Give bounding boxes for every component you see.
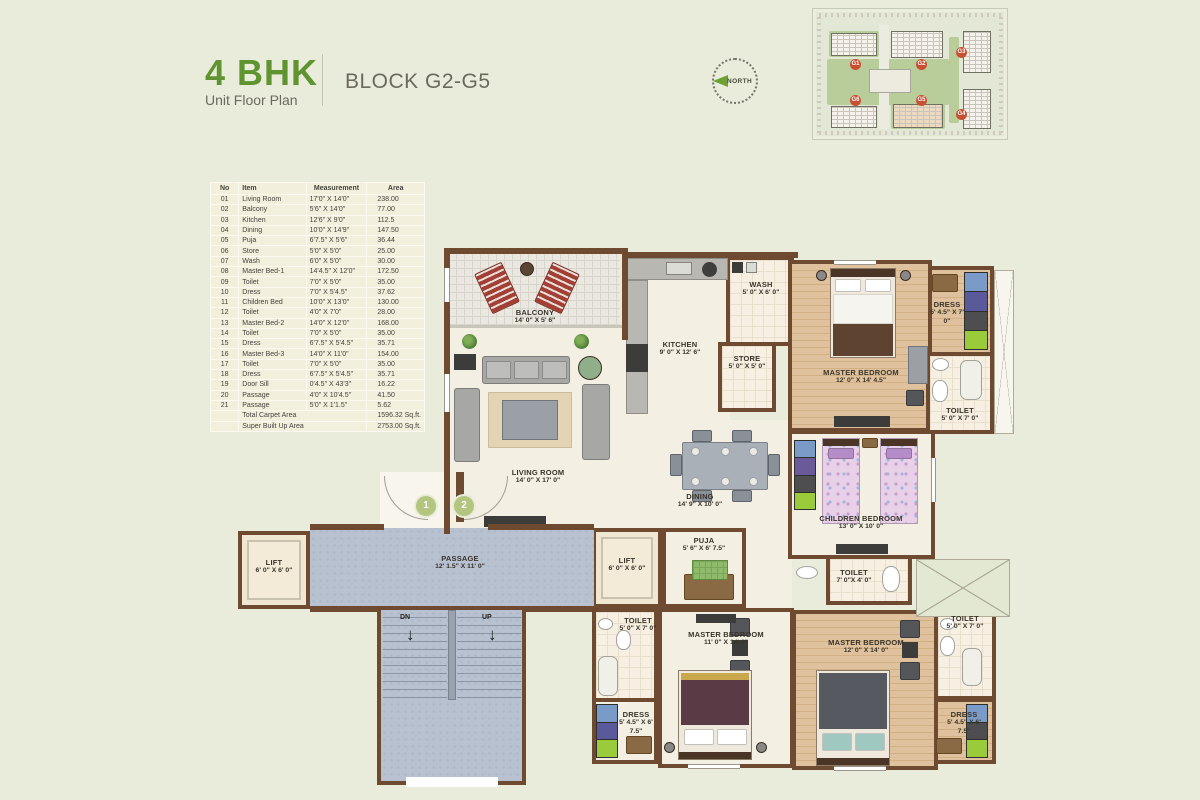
table-row: 02 Balcony 5'6" X 14'0" 77.00 [211, 205, 425, 215]
badge-g4: G4 [956, 109, 967, 120]
stair-exit [406, 777, 498, 787]
bathtub [960, 360, 982, 400]
window [834, 766, 886, 771]
label-master-bedroom-1: MASTER BEDROOM 12' 0" X 14' 4.5" [802, 368, 920, 386]
coffee-table [502, 400, 558, 440]
headboard [881, 439, 917, 446]
plate [749, 447, 758, 456]
wall [622, 248, 628, 340]
col-item: Item [239, 183, 306, 195]
double-bed [816, 670, 890, 766]
north-arrow-icon [713, 75, 728, 87]
stove [702, 262, 717, 277]
parking-strip [819, 131, 1003, 135]
toilet-wc [932, 380, 948, 402]
clubhouse [869, 69, 911, 93]
label-toilet-2: TOILET 5' 0" X 7' 0" [616, 616, 660, 634]
wash-fixture [732, 262, 743, 273]
building-g1 [831, 33, 877, 56]
window [688, 764, 740, 769]
table-header-row: No Item Measurement Area [211, 183, 425, 195]
bathtub [598, 656, 618, 696]
badge-g3: G3 [956, 47, 967, 58]
wall [622, 252, 798, 258]
round-table [520, 262, 534, 276]
phone-table [454, 354, 476, 370]
nightstand [862, 438, 878, 448]
plate [721, 447, 730, 456]
plate [691, 477, 700, 486]
headboard [823, 439, 859, 446]
label-living-room: LIVING ROOM 14' 0" X 17' 0" [480, 468, 596, 486]
wardrobe-shelf [795, 476, 815, 492]
tv-unit [836, 544, 888, 554]
label-balcony: BALCONY 14' 0" X 5' 6" [480, 308, 590, 326]
pillow [886, 448, 912, 459]
label-passage: PASSAGE 12' 1.5" X 11' 0" [408, 554, 512, 572]
blanket [833, 324, 893, 356]
pillow [865, 279, 891, 292]
wall [444, 248, 628, 254]
table-row: 03 Kitchen 12'6" X 9'0" 112.5 [211, 215, 425, 225]
window [444, 268, 450, 302]
bed-runner [681, 673, 749, 680]
chair [900, 662, 920, 680]
col-no: No [211, 183, 239, 195]
label-dress-3: DRESS 5' 4.5" X 6' 7.5" [944, 710, 984, 736]
sofa-right [582, 384, 610, 460]
sofa-left [454, 388, 480, 462]
label-store: STORE 5' 0" X 5' 0" [726, 354, 768, 372]
label-lift-2: LIFT 6' 0" X 6' 0" [598, 556, 656, 574]
label-puja: PUJA 5' 6" X 6' 7.5" [668, 536, 740, 554]
toilet-wc [940, 636, 955, 656]
down-arrow-icon: ↓ [488, 626, 497, 643]
dining-chair [768, 454, 780, 476]
label-toilet-1: TOILET 5' 0" X 7' 0" [930, 406, 990, 424]
stair-divider [448, 610, 456, 700]
plant [462, 334, 477, 349]
pillow [822, 733, 852, 751]
chair [900, 620, 920, 638]
plant [574, 334, 589, 349]
window [931, 458, 936, 502]
wardrobe-shelf [795, 458, 815, 474]
site-key-plan: G1 G2 G3 G6 G5 G4 [812, 8, 1008, 140]
badge-g2: G2 [916, 59, 927, 70]
badge-g6: G6 [850, 95, 861, 106]
label-toilet-3: TOILET 5' 0" X 7' 0" [936, 614, 994, 632]
wardrobe-shelf [965, 331, 987, 349]
door-number-1: 1 [416, 496, 436, 516]
stairs-up-label: UP [482, 614, 492, 621]
single-bed [880, 438, 918, 524]
store-room [718, 342, 776, 412]
kitchen-sink [666, 262, 692, 275]
label-wash: WASH 5' 0" X 6' 0" [730, 280, 792, 298]
nightstand-lamp [900, 270, 911, 281]
wall [488, 524, 594, 530]
dining-chair [670, 454, 682, 476]
label-master-bedroom-3: MASTER BEDROOM 12' 0" X 14' 0" [808, 638, 924, 656]
badge-g1: G1 [850, 59, 861, 70]
floor-plan: 1 2 [230, 228, 1010, 794]
side-duct [994, 270, 1014, 434]
wall [310, 606, 380, 612]
bed-sheet [833, 294, 893, 324]
washbasin [796, 566, 818, 579]
parking-strip [819, 13, 1003, 17]
parking-strip [999, 17, 1003, 133]
col-area: Area [367, 183, 425, 195]
pillow [855, 733, 885, 751]
blanket [819, 673, 887, 729]
pillow [835, 279, 861, 292]
nightstand [664, 742, 675, 753]
wall [522, 606, 594, 612]
table-row: 01 Living Room 17'0" X 14'0" 238.00 [211, 195, 425, 205]
building-g6 [831, 106, 877, 128]
unit-type-title: 4 BHK [205, 52, 318, 94]
headboard [817, 758, 889, 765]
terrace-duct [916, 559, 1010, 617]
window [834, 260, 876, 265]
label-kitchen: KITCHEN 9' 0" X 12' 6" [638, 340, 722, 358]
dressing-desk [932, 274, 958, 292]
plate [691, 447, 700, 456]
tv-unit [834, 416, 890, 427]
label-dress-2: DRESS 5' 4.5" X 6' 7.5" [616, 710, 656, 736]
building-g5-highlighted [893, 104, 943, 128]
chair [906, 390, 924, 406]
dressing-desk [936, 738, 962, 754]
blanket [681, 673, 749, 725]
down-arrow-icon: ↓ [406, 626, 415, 643]
wardrobe-shelf [597, 705, 617, 722]
single-bed [822, 438, 860, 524]
dressing-desk [626, 736, 652, 754]
badge-g5: G5 [916, 95, 927, 106]
washbasin [598, 618, 613, 630]
door-number-2: 2 [454, 496, 474, 516]
nightstand [756, 742, 767, 753]
sofa-3seat [482, 356, 570, 384]
wardrobe-shelf [597, 740, 617, 757]
double-bed [830, 268, 896, 358]
wardrobe-shelf [965, 273, 987, 291]
dining-chair [692, 430, 712, 442]
wardrobe-shelf [967, 740, 987, 757]
stair-flight-right [457, 610, 521, 698]
nightstand-lamp [816, 270, 827, 281]
stairs-down-label: DN [400, 614, 410, 621]
col-measurement: Measurement [306, 183, 367, 195]
block-title: BLOCK G2-G5 [345, 70, 491, 94]
label-children-bedroom: CHILDREN BEDROOM 13' 0" X 10' 0" [796, 514, 926, 532]
label-dress-1: DRESS 5' 4.5" X 7' 0" [928, 300, 966, 326]
label-master-bedroom-2: MASTER BEDROOM 11' 0" X 14' 0" [668, 630, 784, 648]
wardrobe-shelf [795, 441, 815, 457]
wardrobe-shelf [795, 493, 815, 509]
wash-sink [746, 262, 757, 273]
header-divider [322, 54, 323, 106]
label-lift-1: LIFT 6' 0" X 6' 0" [244, 558, 304, 576]
wardrobe-shelf [965, 312, 987, 330]
bathtub [962, 648, 982, 686]
sofa-cushion [486, 361, 511, 379]
washbasin [932, 358, 949, 371]
wardrobe-shelf [597, 723, 617, 740]
puja-altar [692, 560, 728, 580]
building-g4 [963, 89, 991, 129]
plate [721, 477, 730, 486]
dining-table [682, 442, 768, 490]
window [444, 374, 450, 412]
parking-strip [817, 17, 821, 133]
dining-chair [732, 430, 752, 442]
wardrobe-shelf [965, 292, 987, 310]
page-title: 4 BHK Unit Floor Plan [205, 52, 318, 108]
pillow [828, 448, 854, 459]
toilet-wc [882, 566, 900, 592]
wardrobe [964, 272, 988, 350]
tv-unit [696, 614, 736, 623]
wall [444, 328, 450, 534]
building-g2 [891, 31, 943, 58]
pillow [717, 729, 747, 745]
building-g3 [963, 31, 991, 73]
wardrobe [596, 704, 618, 758]
north-label: NORTH [727, 78, 752, 85]
sofa-cushion [542, 361, 567, 379]
headboard [679, 752, 751, 759]
stair-flight-left [383, 610, 447, 698]
wardrobe [794, 440, 816, 510]
label-dining: DINING 14' 9" X 10' 0" [658, 492, 742, 510]
label-children-toilet: TOILET 7' 0"X 4' 0" [828, 568, 880, 586]
unit-type-subtitle: Unit Floor Plan [205, 92, 318, 108]
headboard [831, 269, 895, 277]
side-table [578, 356, 602, 380]
double-bed [678, 670, 752, 760]
pillow [684, 729, 714, 745]
wall [310, 524, 384, 530]
plate [749, 477, 758, 486]
corridor-floor [744, 528, 792, 614]
sofa-cushion [514, 361, 539, 379]
